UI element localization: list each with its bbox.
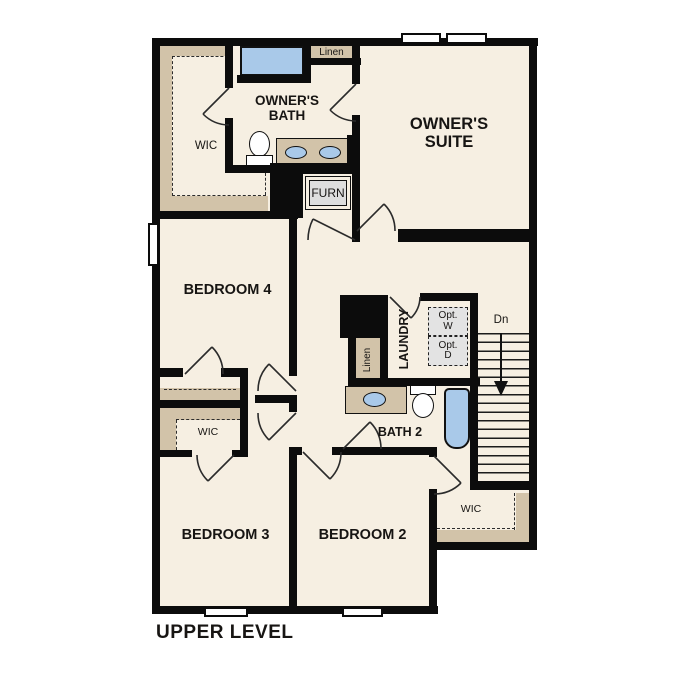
stairs-down-label: Dn (488, 314, 514, 327)
door-owners-wic (203, 88, 229, 125)
door-owners-suite (357, 204, 395, 231)
owners-wic-label: WIC (186, 140, 226, 153)
bedroom3-label: BEDROOM 3 (158, 527, 293, 543)
bedroom4-label: BEDROOM 4 (160, 282, 295, 298)
linen-top-label: Linen (311, 47, 352, 58)
bedroom3-wic-label: WIC (188, 427, 228, 439)
plan-title: UPPER LEVEL (156, 622, 376, 643)
door-owners-bath (330, 84, 356, 121)
linen-hall-label: Linen (362, 330, 374, 390)
door-bedroom4-closet (185, 347, 223, 374)
owners-suite-label: OWNER'S SUITE (399, 115, 499, 152)
door-bedroom2-wic (434, 456, 461, 494)
door-bedroom3-wic (197, 455, 234, 481)
door-bedroom2 (303, 452, 341, 479)
owners-bath-label: OWNER'S BATH (247, 93, 327, 123)
bedroom2-label: BEDROOM 2 (295, 527, 430, 543)
window (446, 33, 487, 44)
door-bedroom3 (258, 413, 296, 440)
door-swings (0, 0, 687, 687)
bedroom2-wic-label: WIC (451, 504, 491, 516)
bath2-label: BATH 2 (368, 425, 432, 439)
floor-plan: FURN Opt. W Opt. D (0, 0, 687, 687)
window (342, 607, 383, 617)
laundry-label: LAUNDRY (397, 279, 411, 399)
door-furnace (308, 219, 355, 240)
window (204, 607, 248, 617)
window (401, 33, 441, 44)
door-bedroom4 (258, 364, 296, 391)
window (148, 223, 159, 266)
